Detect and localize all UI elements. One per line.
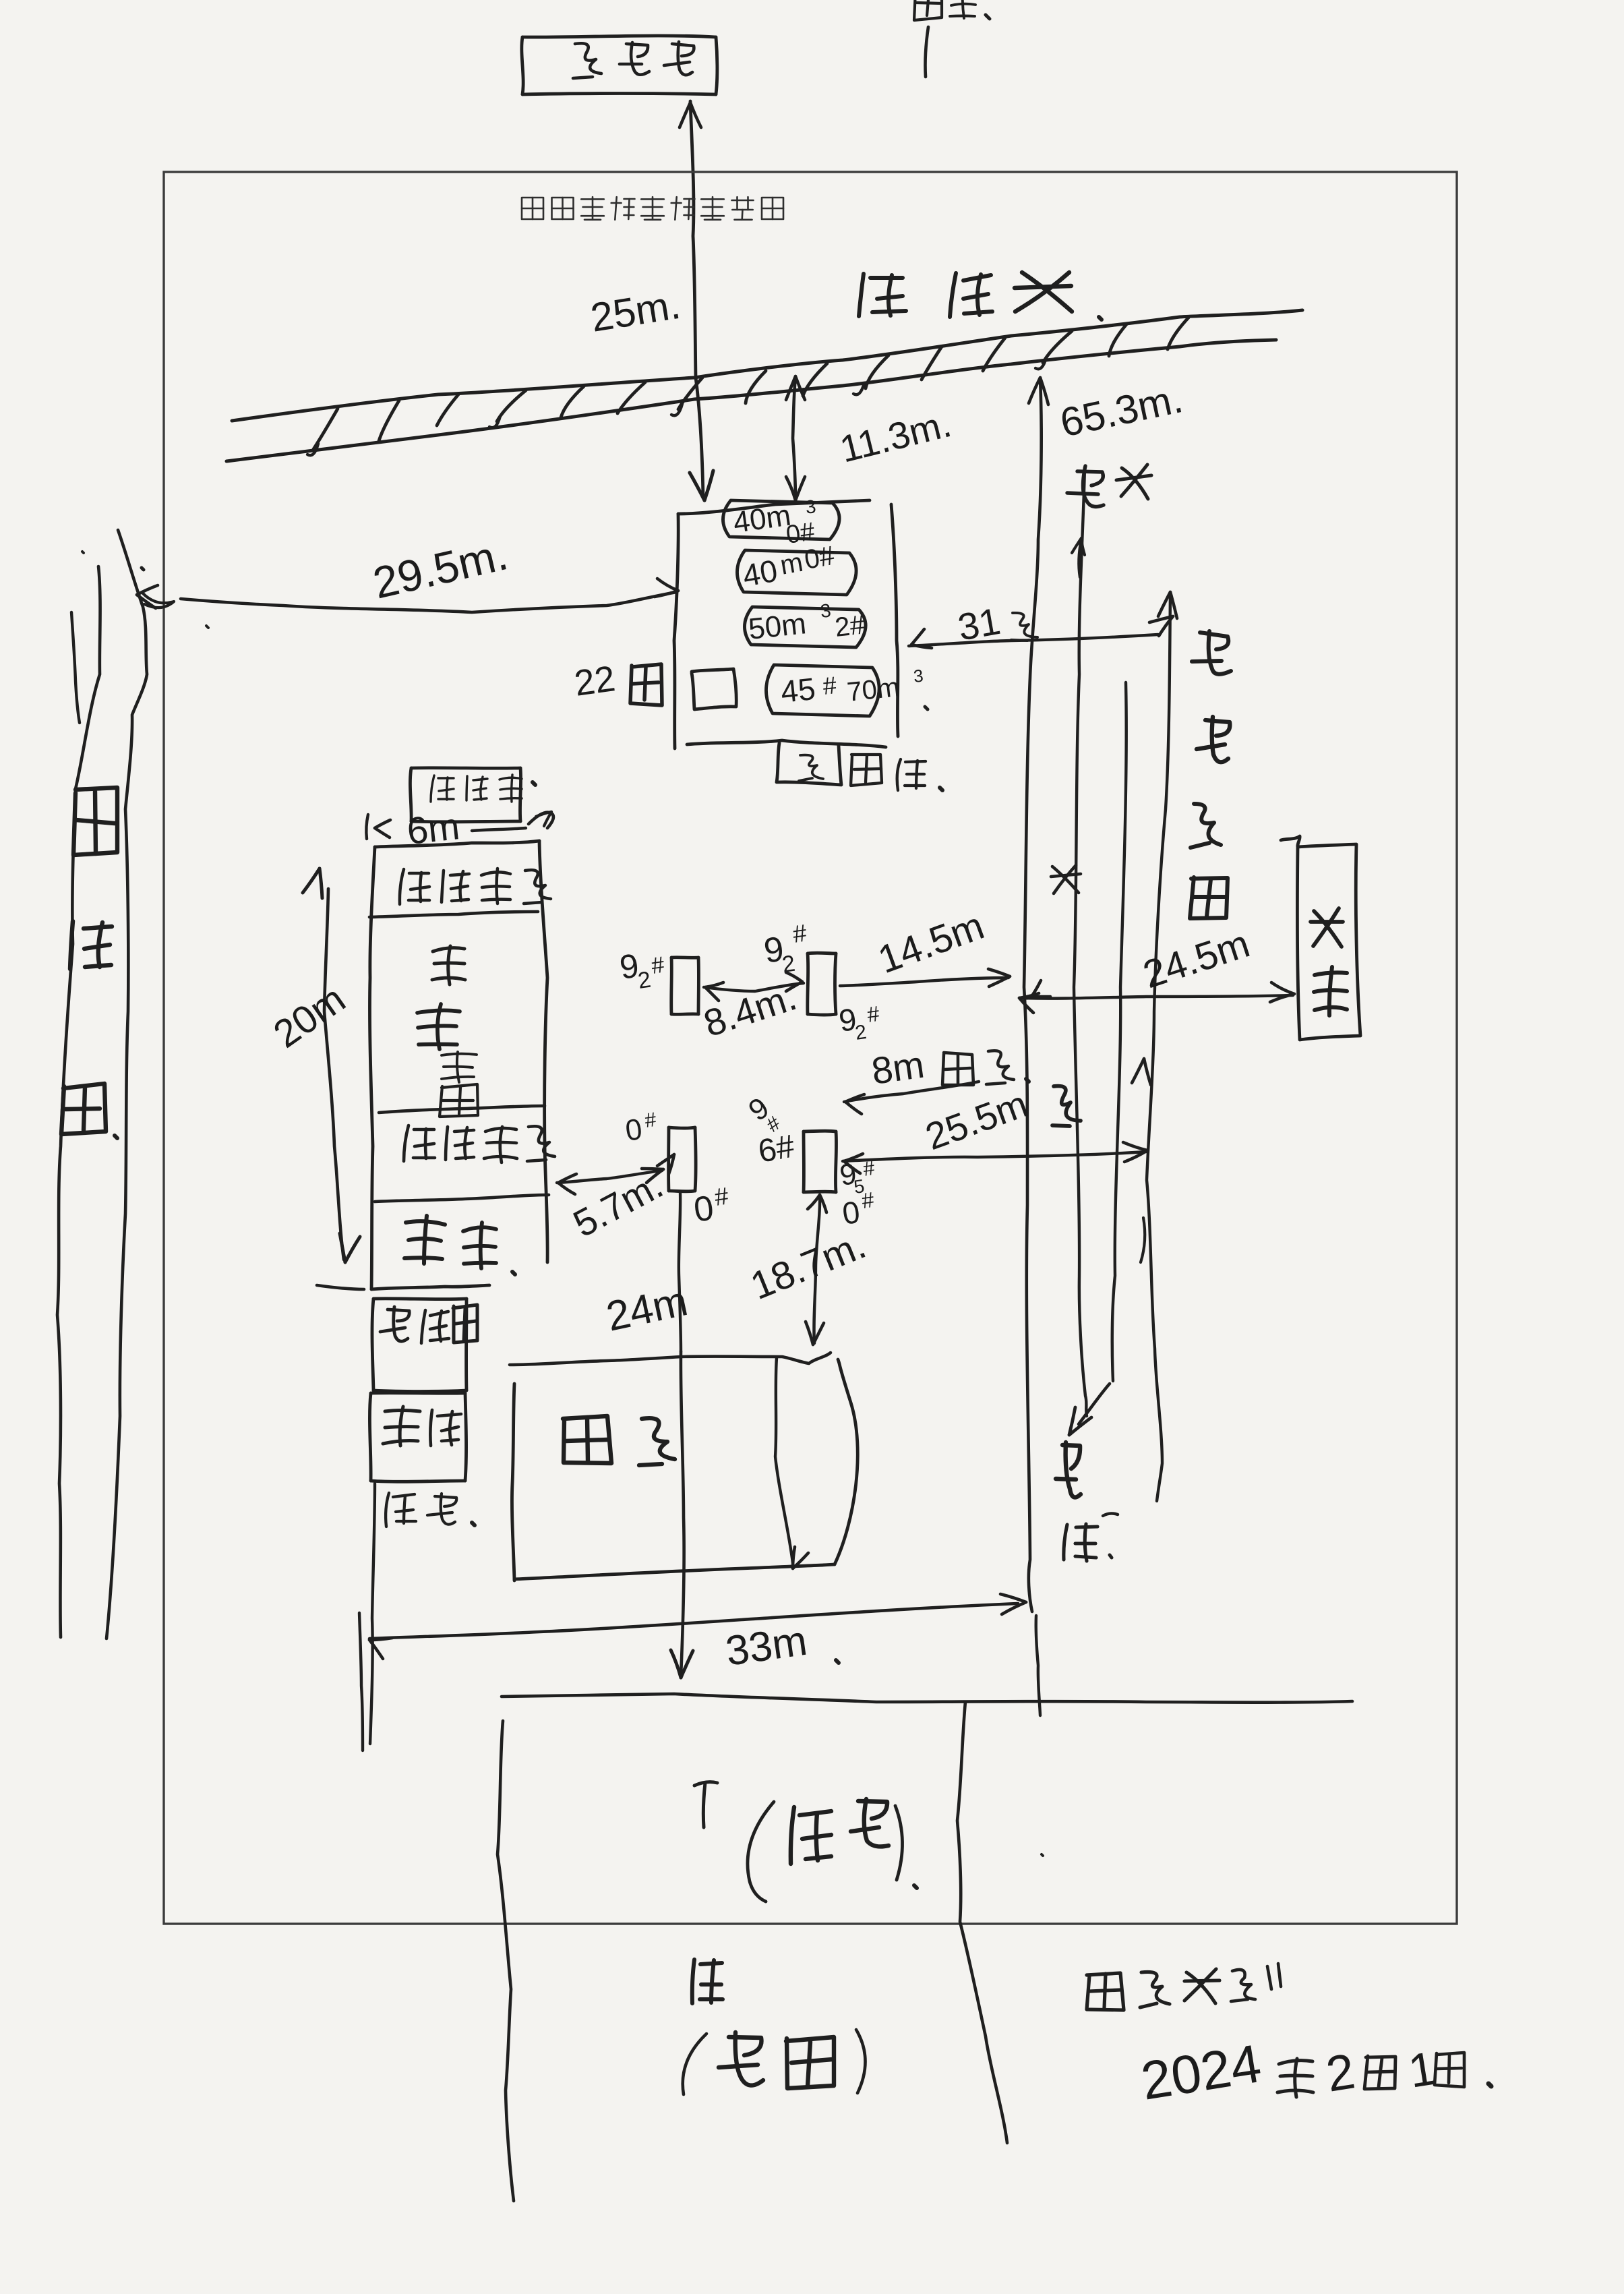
svg-text:#: # — [822, 671, 838, 700]
svg-text:70m: 70m — [845, 672, 901, 707]
svg-text:50m: 50m — [747, 607, 808, 646]
svg-text:0#: 0# — [802, 541, 837, 575]
svg-text:2#: 2# — [833, 610, 867, 642]
svg-text:3: 3 — [819, 600, 832, 622]
svg-text:8m: 8m — [869, 1043, 927, 1092]
svg-text:40: 40 — [740, 553, 780, 593]
svg-text:45: 45 — [779, 671, 817, 709]
svg-text:22: 22 — [572, 658, 618, 704]
svg-text:31: 31 — [955, 599, 1003, 649]
svg-text:6#: 6# — [756, 1128, 798, 1170]
